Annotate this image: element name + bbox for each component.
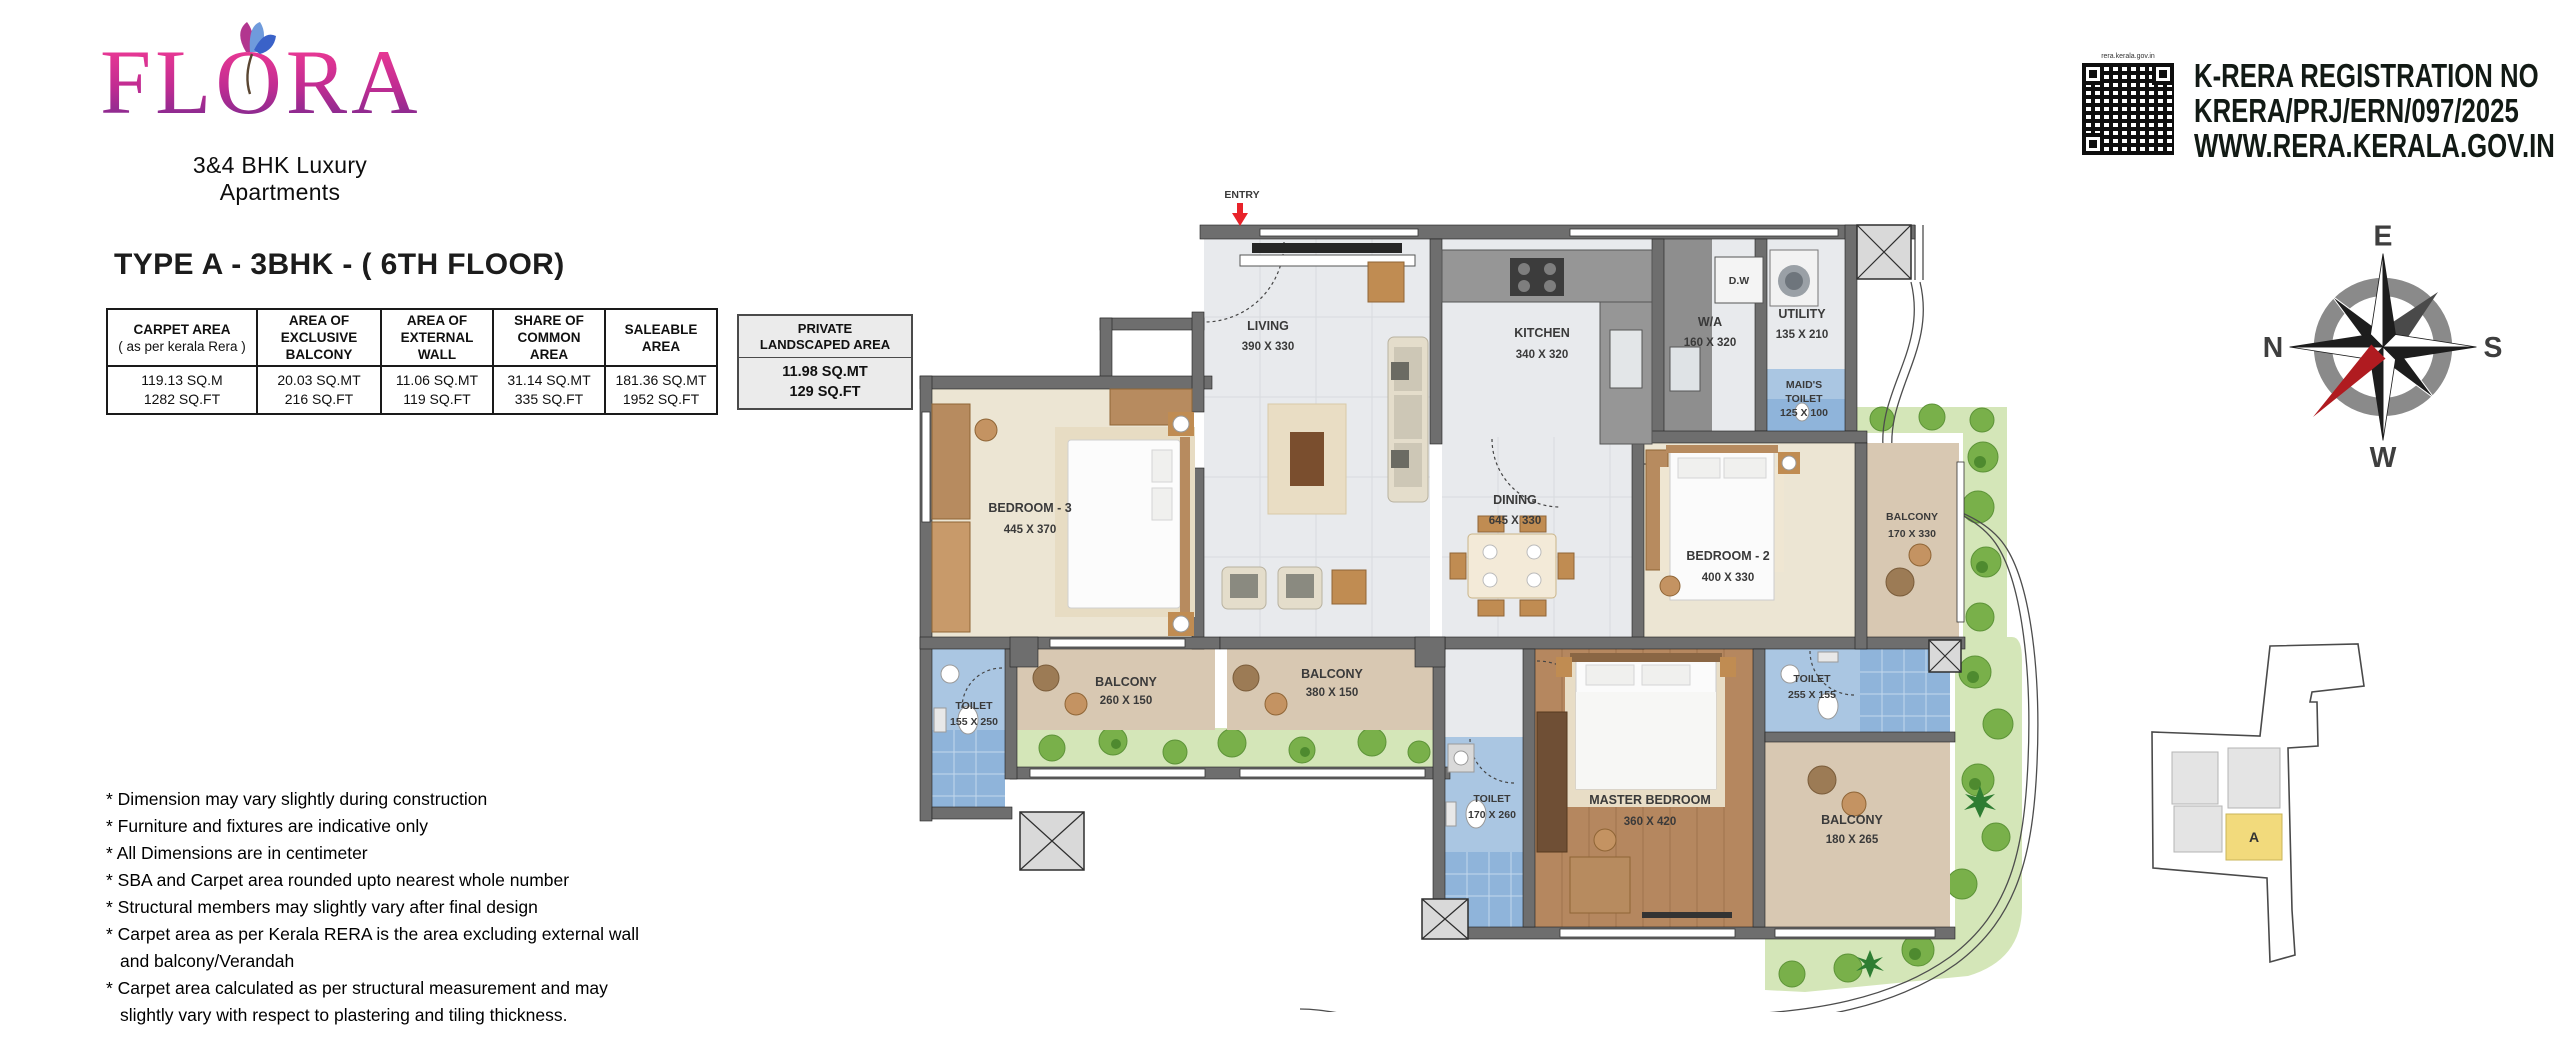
rera-registration: K-RERA REGISTRATION NO KRERA/PRJ/ERN/097… [2194,58,2560,163]
col-header: SALEABLE AREA [605,309,717,366]
compass-right-label: S [2484,332,2503,364]
qr-finder-icon [2082,63,2104,85]
room-label: BALCONY [1301,667,1363,681]
room-dims: 170 X 330 [1888,528,1936,540]
note-item: * SBA and Carpet area rounded upto neare… [106,867,646,894]
note-item: * Structural members may slightly vary a… [106,894,646,921]
tagline-line1: 3&4 BHK Luxury [110,152,450,179]
note-item: * All Dimensions are in centimeter [106,840,646,867]
floor-plan: ENTRY LIVING 390 X 330 KITCHEN 340 X 320… [870,112,2110,1012]
compass-left-label: N [2263,332,2283,364]
area-value: 20.03 SQ.MT216 SQ.FT [257,366,381,414]
area-value: 31.14 SQ.MT335 SQ.FT [493,366,605,414]
room-label: TOILET [1793,673,1831,685]
room-dims: 390 X 330 [1242,341,1294,353]
qr-finder-icon [2152,63,2174,85]
entry-label: ENTRY [1224,189,1259,201]
room-dims: 125 X 100 [1780,407,1828,419]
note-item: * Carpet area calculated as per structur… [106,975,646,1029]
area-value: 119.13 SQ.M1282 SQ.FT [107,366,257,414]
room-label: BALCONY [1821,813,1883,827]
room-label: LIVING [1247,319,1289,333]
area-value: 181.36 SQ.MT1952 SQ.FT [605,366,717,414]
tagline-line2: Apartments [110,179,450,206]
room-dims: 135 X 210 [1776,329,1828,341]
disclaimer-notes: * Dimension may vary slightly during con… [106,786,646,1029]
area-table-value-row: 119.13 SQ.M1282 SQ.FT 20.03 SQ.MT216 SQ.… [107,366,717,414]
brand-logo: FLORA [100,36,422,128]
room-label: TOILET [1473,793,1511,805]
col-header: SHARE OFCOMMON AREA [493,309,605,366]
room-dims: 170 X 260 [1468,809,1516,821]
room-label: BEDROOM - 3 [988,501,1071,515]
page-title: TYPE A - 3BHK - ( 6TH FLOOR) [114,248,565,282]
room-dims: 340 X 320 [1516,349,1568,361]
brochure-page: FLORA 3&4 BHK Luxury Apartments TYPE A -… [0,0,2560,1055]
room-dims: 260 X 150 [1100,695,1152,707]
area-table-header-row: CARPET AREA( as per kerala Rera ) AREA O… [107,309,717,366]
note-item: * Carpet area as per Kerala RERA is the … [106,921,646,975]
room-label: DINING [1493,493,1537,507]
note-item: * Furniture and fixtures are indicative … [106,813,646,840]
room-dims: 180 X 265 [1826,834,1879,846]
flower-icon [220,18,282,98]
compass-bottom-label: W [2370,442,2397,472]
room-label: BALCONY [1886,511,1938,523]
note-item: * Dimension may vary slightly during con… [106,786,646,813]
room-dims: 400 X 330 [1702,572,1754,584]
key-plan: A [2140,640,2390,980]
room-label: BEDROOM - 2 [1686,549,1769,563]
room-label: MAID'S [1786,379,1822,391]
room-label: BALCONY [1095,675,1157,689]
room-label: UTILITY [1778,307,1826,321]
room-dims: 645 X 330 [1489,515,1541,527]
room-dims: 380 X 150 [1306,687,1358,699]
col-header: AREA OFEXCLUSIVE BALCONY [257,309,381,366]
rera-line2: KRERA/PRJ/ERN/097/2025 [2194,93,2555,128]
area-table: CARPET AREA( as per kerala Rera ) AREA O… [106,308,718,415]
compass-top-label: E [2374,222,2393,252]
room-label: TOILET [955,700,993,712]
room-dims: 360 X 420 [1624,816,1676,828]
keyplan-unit [2228,748,2280,808]
rera-line3: WWW.RERA.KERALA.GOV.IN [2194,128,2555,163]
room-label: D.W [1729,275,1750,287]
room-label: MASTER BEDROOM [1589,793,1711,807]
keyplan-unit [2174,806,2222,852]
keyplan-unit-label: A [2249,829,2259,845]
entry-marker: ENTRY [1224,189,1259,226]
brand-tagline: 3&4 BHK Luxury Apartments [110,152,450,206]
room-dims: 255 X 155 [1788,689,1836,701]
room-label: KITCHEN [1514,326,1570,340]
room-dims: 445 X 370 [1004,524,1056,536]
room-label: TOILET [1785,393,1823,405]
col-header: AREA OFEXTERNAL WALL [381,309,493,366]
keyplan-unit [2172,752,2218,804]
qr-caption: rera.kerala.gov.in [2080,52,2176,61]
room-label: W/A [1698,315,1722,329]
room-dims: 155 X 250 [950,716,998,728]
area-value: 11.06 SQ.MT119 SQ.FT [381,366,493,414]
col-header: CARPET AREA( as per kerala Rera ) [107,309,257,366]
compass-rose: E S W N [2258,222,2508,472]
rera-line1: K-RERA REGISTRATION NO [2194,58,2555,93]
room-dims: 160 X 320 [1684,337,1736,349]
